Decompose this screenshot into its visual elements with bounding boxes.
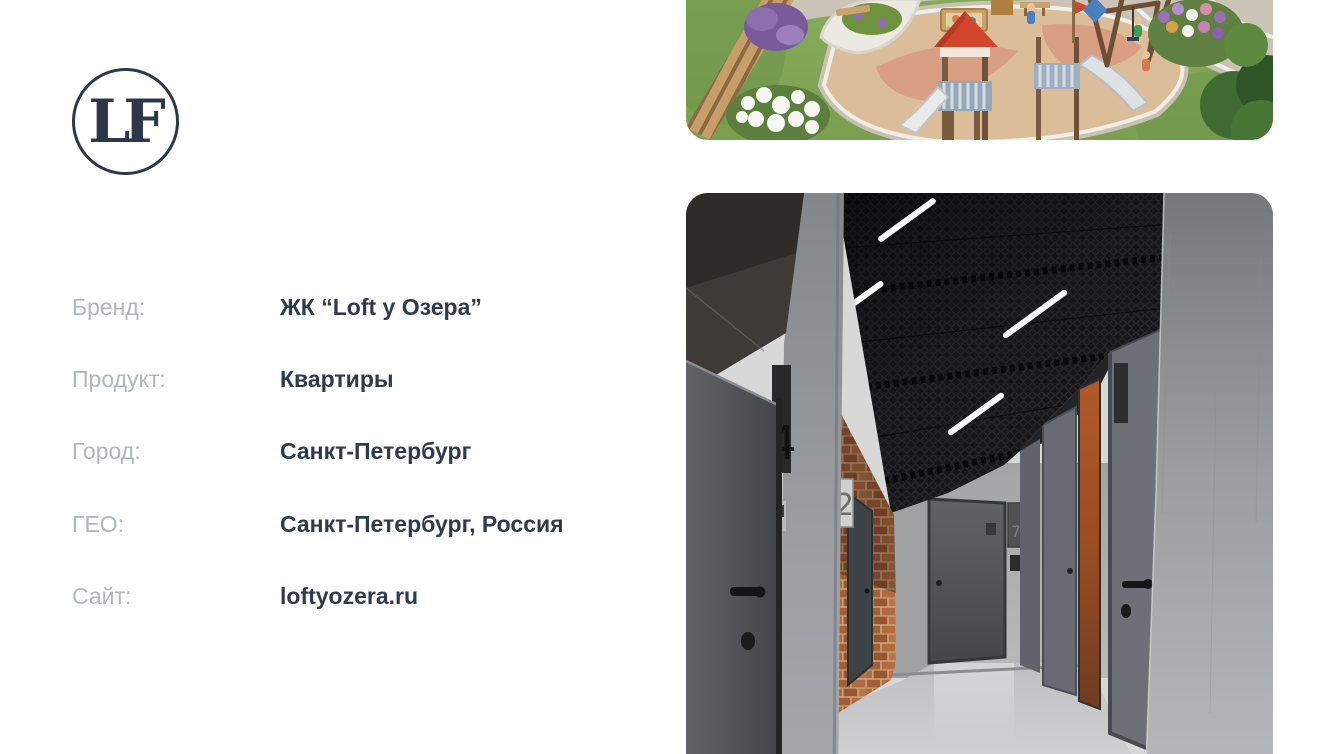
info-label: Продукт: (72, 363, 280, 395)
info-value: ЖК “Loft у Озера” (280, 291, 482, 323)
info-row-geo: ГЕО: Санкт-Петербург, Россия (72, 508, 564, 540)
info-label: Город: (72, 435, 280, 467)
end-panel-number: 7 (1011, 522, 1021, 541)
info-row-brand: Бренд: ЖК “Loft у Озера” (72, 291, 482, 323)
corridor-render: 7 (686, 193, 1273, 754)
brand-logo: LF (72, 68, 179, 175)
info-value: Санкт-Петербург (280, 435, 471, 467)
info-value: Санкт-Петербург, Россия (280, 508, 564, 540)
slide-canvas: LF Бренд: ЖК “Loft у Озера” Продукт: Ква… (0, 0, 1340, 754)
corridor-illustration: 7 (686, 193, 1273, 754)
playground-render (686, 0, 1273, 140)
info-value: Квартиры (280, 363, 394, 395)
info-row-product: Продукт: Квартиры (72, 363, 394, 395)
info-row-site: Сайт: loftyozera.ru (72, 580, 418, 612)
logo-monogram: LF (88, 92, 158, 152)
info-row-city: Город: Санкт-Петербург (72, 435, 471, 467)
info-label: ГЕО: (72, 508, 280, 540)
info-label: Сайт: (72, 580, 280, 612)
playground-illustration (686, 0, 1273, 140)
info-value: loftyozera.ru (280, 580, 418, 612)
info-label: Бренд: (72, 291, 280, 323)
